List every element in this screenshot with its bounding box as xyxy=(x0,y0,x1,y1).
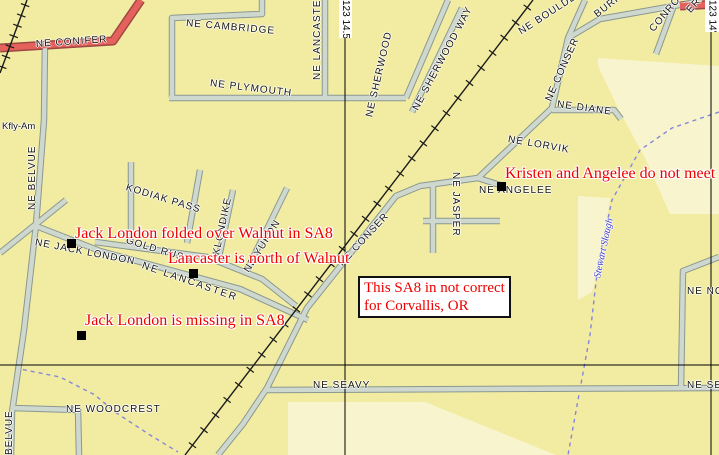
street-label-ne-cambridge: NE CAMBRIDGE xyxy=(185,18,275,38)
street-label-ne-plymouth: NE PLYMOUTH xyxy=(209,78,292,100)
street-label-ne-conifer: NE CONIFER xyxy=(36,34,108,51)
note-box: This SA8 in not correct for Corvallis, O… xyxy=(358,276,511,318)
street-label-ne-seavy-west: NE SEAVY xyxy=(313,380,370,392)
graticule-label-1: 123 14' xyxy=(705,0,719,32)
marker-jack-london-missing xyxy=(77,331,86,340)
note-line-2: for Corvallis, OR xyxy=(364,297,505,315)
street-label-ne-jasper: NE JASPER xyxy=(449,172,461,237)
street-label-conroy: CONROY xyxy=(647,0,688,35)
street-label-ne-diane: NE DIANE xyxy=(556,99,612,119)
street-label-belvue-south: BELVUE xyxy=(4,410,16,455)
street-label-kodiak-pass: KODIAK PASS xyxy=(124,182,202,216)
street-label-ne-sherwood: NE SHERWOOD xyxy=(364,30,395,118)
annot-lancaster-north: Lancaster is north of Walnut xyxy=(168,249,349,268)
graticule-label-text: 123 14.5' xyxy=(340,0,351,38)
annot-jack-london-folded: Jack London folded over Walnut in SA8 xyxy=(75,224,333,243)
street-label-ne-sherwood-way: NE SHERWOOD WAY xyxy=(411,5,476,113)
marker-lancaster xyxy=(189,269,198,278)
annot-jack-london-missing: Jack London is missing in SA8 xyxy=(85,311,285,330)
street-label-ne-seavy-east: NE SEAVY xyxy=(687,380,719,392)
street-label-er-partial: ER xyxy=(685,0,705,16)
street-label-stewart-slough: Stewart Slough xyxy=(592,217,616,279)
marker-angelee xyxy=(497,182,506,191)
street-label-ne-no: NE NO xyxy=(687,286,719,298)
street-label-kfly-am: Kfly-Am xyxy=(2,121,35,133)
street-label-ne-angelee: NE ANGELEE xyxy=(479,185,552,197)
street-label-ne-lorvik: NE LORVIK xyxy=(507,134,570,157)
annot-kristen-angelee: Kristen and Angelee do not meet xyxy=(505,164,715,183)
street-label-ne-lancaster-north: NE LANCASTER xyxy=(312,0,324,80)
map-overlay: This SA8 in not correct for Corvallis, O… xyxy=(0,0,719,455)
street-label-ne-woodcrest: NE WOODCREST xyxy=(66,404,161,416)
map[interactable]: This SA8 in not correct for Corvallis, O… xyxy=(0,0,719,455)
street-label-burke: BURKE xyxy=(592,0,630,21)
note-line-1: This SA8 in not correct xyxy=(364,279,505,297)
street-label-ne-boulder: NE BOULDER xyxy=(517,0,586,38)
street-label-ne-belvue: NE BELVUE xyxy=(27,146,39,210)
graticule-label-0: 123 14.5' xyxy=(339,0,352,38)
graticule-label-text: 123 14' xyxy=(707,0,718,32)
street-label-ne-conser-north: NE CONSER xyxy=(544,36,583,103)
